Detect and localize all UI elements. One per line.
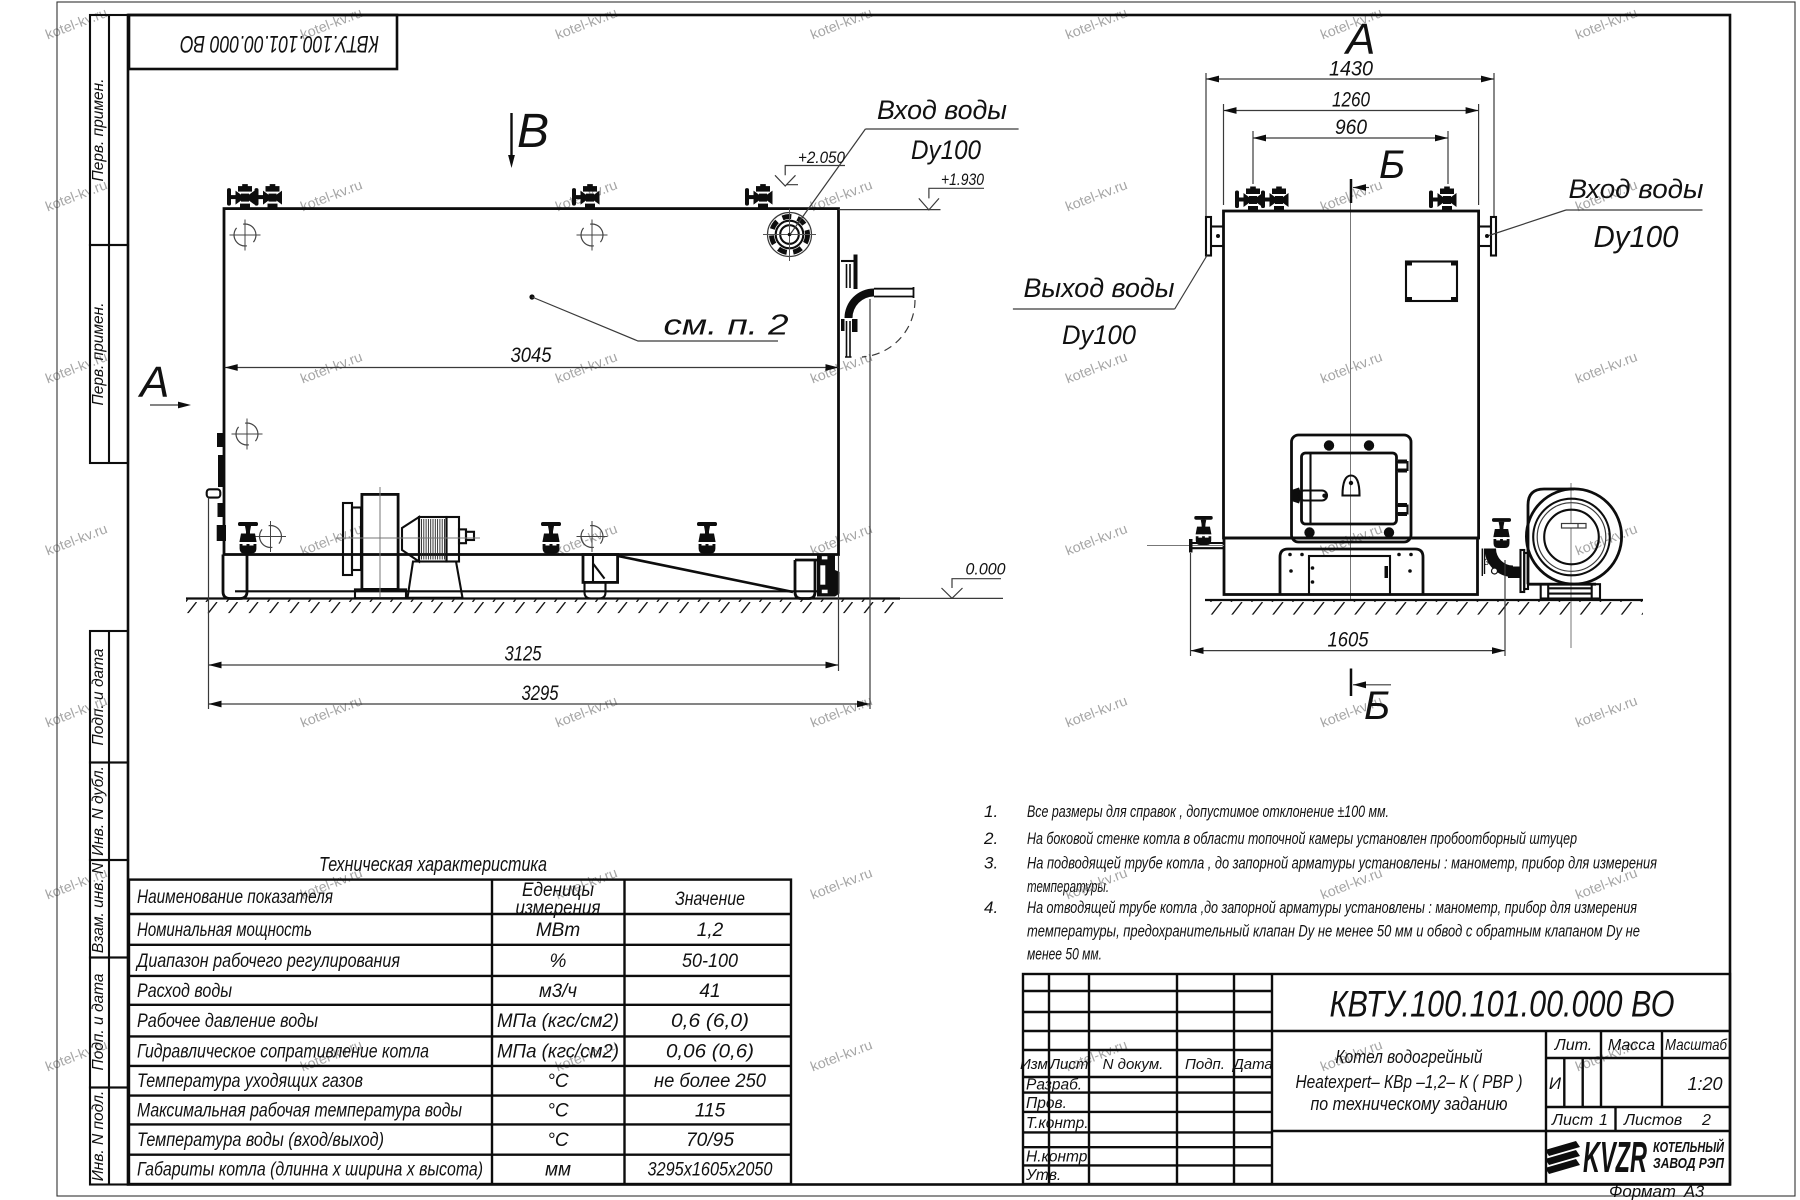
svg-text:мм: мм bbox=[545, 1160, 571, 1181]
svg-text:50-100: 50-100 bbox=[682, 951, 738, 972]
svg-text:1260: 1260 bbox=[1332, 89, 1370, 112]
svg-text:1,2: 1,2 bbox=[697, 920, 724, 941]
svg-text:температуры, предохранительный: температуры, предохранительный клапан Dу… bbox=[1027, 922, 1640, 941]
svg-text:МПа (кгс/см2): МПа (кгс/см2) bbox=[497, 1011, 619, 1032]
svg-text:Диапазон рабочего регулировани: Диапазон рабочего регулирования bbox=[135, 951, 400, 972]
svg-text:МПа (кгс/см2): МПа (кгс/см2) bbox=[497, 1042, 619, 1063]
svg-text:Листов: Листов bbox=[1623, 1112, 1682, 1129]
svg-text:Значение: Значение bbox=[675, 889, 745, 910]
svg-text:Вход воды: Вход воды bbox=[877, 95, 1007, 125]
svg-text:Подп. и дата: Подп. и дата bbox=[90, 973, 107, 1070]
svg-text:0,06 (0,6): 0,06 (0,6) bbox=[666, 1042, 754, 1063]
svg-text:Выход воды: Выход воды bbox=[1024, 273, 1175, 303]
svg-text:Подп.: Подп. bbox=[1185, 1056, 1225, 1073]
svg-text:Расход воды: Расход воды bbox=[137, 981, 232, 1002]
svg-text:На боковой стенке котла в обла: На боковой стенке котла в области топочн… bbox=[1027, 829, 1577, 848]
svg-text:Рабочее давление воды: Рабочее давление воды bbox=[137, 1011, 318, 1032]
svg-text:3125: 3125 bbox=[505, 643, 542, 666]
svg-text:°С: °С bbox=[547, 1130, 569, 1151]
svg-text:KVZR: KVZR bbox=[1583, 1133, 1647, 1182]
svg-text:3295х1605х2050: 3295х1605х2050 bbox=[648, 1160, 773, 1181]
svg-text:температуры.: температуры. bbox=[1027, 877, 1109, 896]
svg-text:по техническому заданию: по техническому заданию bbox=[1311, 1093, 1508, 1114]
svg-text:Лист: Лист bbox=[1551, 1112, 1593, 1129]
svg-text:N докум.: N докум. bbox=[1103, 1056, 1164, 1073]
svg-text:Dy100: Dy100 bbox=[1594, 219, 1679, 254]
svg-text:+2.050: +2.050 bbox=[798, 148, 845, 167]
svg-text:На отводящей трубе котла ,до з: На отводящей трубе котла ,до запорной ар… bbox=[1027, 898, 1637, 917]
svg-text:Габариты котла (длинна х ширин: Габариты котла (длинна х ширина х высота… bbox=[137, 1160, 483, 1181]
svg-text:4.: 4. bbox=[984, 898, 998, 917]
svg-text:41: 41 bbox=[699, 981, 720, 1002]
svg-text:В: В bbox=[517, 105, 549, 158]
svg-text:КВТУ.100.101.00.000 ВО: КВТУ.100.101.00.000 ВО bbox=[1330, 984, 1675, 1025]
svg-text:Котел водогрейный: Котел водогрейный bbox=[1336, 1046, 1483, 1067]
svg-text:Формат: Формат bbox=[1609, 1183, 1676, 1200]
svg-text:Все размеры для справок , допу: Все размеры для справок , допустимое отк… bbox=[1027, 802, 1389, 821]
svg-text:°С: °С bbox=[547, 1101, 569, 1122]
svg-text:Вход воды: Вход воды bbox=[1569, 174, 1704, 204]
svg-text:1:20: 1:20 bbox=[1687, 1074, 1722, 1094]
svg-text:Температура воды (вход/выход): Температура воды (вход/выход) bbox=[137, 1130, 384, 1151]
svg-text:960: 960 bbox=[1335, 116, 1367, 139]
svg-text:Б: Б bbox=[1364, 684, 1390, 728]
svg-text:70/95: 70/95 bbox=[686, 1130, 734, 1151]
svg-text:%: % bbox=[550, 951, 567, 972]
svg-text:А3: А3 bbox=[1683, 1183, 1705, 1200]
svg-text:Наименование показателя: Наименование показателя bbox=[137, 887, 333, 908]
svg-text:0.000: 0.000 bbox=[966, 560, 1007, 579]
svg-text:1: 1 bbox=[1599, 1112, 1608, 1129]
svg-text:1605: 1605 bbox=[1328, 629, 1369, 652]
svg-text:Дата: Дата bbox=[1231, 1056, 1273, 1073]
svg-text:Инв. N дубл.: Инв. N дубл. bbox=[90, 766, 107, 856]
svg-text:КОТЕЛЬНЫЙ: КОТЕЛЬНЫЙ bbox=[1653, 1138, 1724, 1156]
svg-text:Разраб.: Разраб. bbox=[1026, 1077, 1082, 1094]
svg-text:1430: 1430 bbox=[1329, 58, 1373, 81]
svg-text:Взам. инв. N: Взам. инв. N bbox=[90, 862, 107, 953]
svg-text:Dy100: Dy100 bbox=[911, 135, 981, 165]
svg-text:0,6 (6,0): 0,6 (6,0) bbox=[671, 1011, 749, 1032]
svg-text:Перв. примен.: Перв. примен. bbox=[90, 302, 107, 405]
svg-text:МВт: МВт bbox=[536, 920, 580, 941]
svg-text:+1.930: +1.930 bbox=[941, 170, 984, 189]
svg-text:Утв.: Утв. bbox=[1025, 1167, 1061, 1184]
svg-text:м3/ч: м3/ч bbox=[539, 981, 577, 1002]
svg-text:Температура уходящих газов: Температура уходящих газов bbox=[137, 1071, 363, 1092]
svg-text:Максимальная рабочая температу: Максимальная рабочая температура воды bbox=[137, 1101, 462, 1122]
svg-text:Техническая характеристика: Техническая характеристика bbox=[319, 854, 547, 876]
svg-text:3.: 3. bbox=[984, 854, 998, 873]
svg-text:Dy100: Dy100 bbox=[1062, 320, 1136, 350]
svg-text:Масса: Масса bbox=[1608, 1037, 1655, 1054]
svg-text:менее 50 мм.: менее 50 мм. bbox=[1027, 945, 1102, 964]
svg-text:3295: 3295 bbox=[522, 682, 559, 705]
svg-text:3045: 3045 bbox=[511, 344, 552, 367]
svg-text:Лист: Лист bbox=[1049, 1056, 1089, 1073]
svg-text:Б: Б bbox=[1379, 143, 1405, 187]
svg-text:Пров.: Пров. bbox=[1026, 1095, 1067, 1112]
svg-text:2: 2 bbox=[1701, 1112, 1711, 1129]
svg-text:измерения: измерения bbox=[516, 898, 601, 919]
svg-text:Изм.: Изм. bbox=[1020, 1056, 1052, 1073]
svg-text:Перв. примен.: Перв. примен. bbox=[90, 78, 107, 181]
svg-text:На подводящей трубе котла ,: На подводящей трубе котла , до запорной … bbox=[1027, 854, 1657, 873]
svg-text:Heatexpert– КВр –1,2– К ( РВР: Heatexpert– КВр –1,2– К ( РВР ) bbox=[1296, 1071, 1523, 1092]
svg-text:КВТУ.100.101.00.000 ВО: КВТУ.100.101.00.000 ВО bbox=[180, 30, 379, 57]
svg-text:Т.контр.: Т.контр. bbox=[1026, 1115, 1089, 1132]
svg-text:И: И bbox=[1549, 1074, 1562, 1093]
svg-text:см. п. 2: см. п. 2 bbox=[664, 310, 789, 342]
svg-text:2.: 2. bbox=[983, 829, 998, 848]
svg-text:Инв. N подл.: Инв. N подл. bbox=[90, 1091, 107, 1182]
svg-text:1.: 1. bbox=[984, 802, 998, 821]
svg-text:Масштаб: Масштаб bbox=[1665, 1037, 1728, 1054]
svg-text:115: 115 bbox=[695, 1101, 726, 1122]
svg-text:А: А bbox=[137, 358, 169, 407]
svg-text:не более 250: не более 250 bbox=[654, 1071, 766, 1092]
svg-text:Подп. и дата: Подп. и дата bbox=[90, 648, 107, 745]
svg-text:Номинальная мощность: Номинальная мощность bbox=[137, 920, 312, 941]
svg-text:Лит.: Лит. bbox=[1554, 1037, 1592, 1054]
svg-text:3: 3 bbox=[1484, 557, 1489, 567]
svg-text:Гидравлическое сопративление к: Гидравлическое сопративление котла bbox=[137, 1042, 429, 1063]
svg-text:ЗАВОД РЭП: ЗАВОД РЭП bbox=[1653, 1156, 1724, 1172]
svg-text:°С: °С bbox=[547, 1071, 569, 1092]
svg-text:Н.контр.: Н.контр. bbox=[1026, 1149, 1092, 1166]
